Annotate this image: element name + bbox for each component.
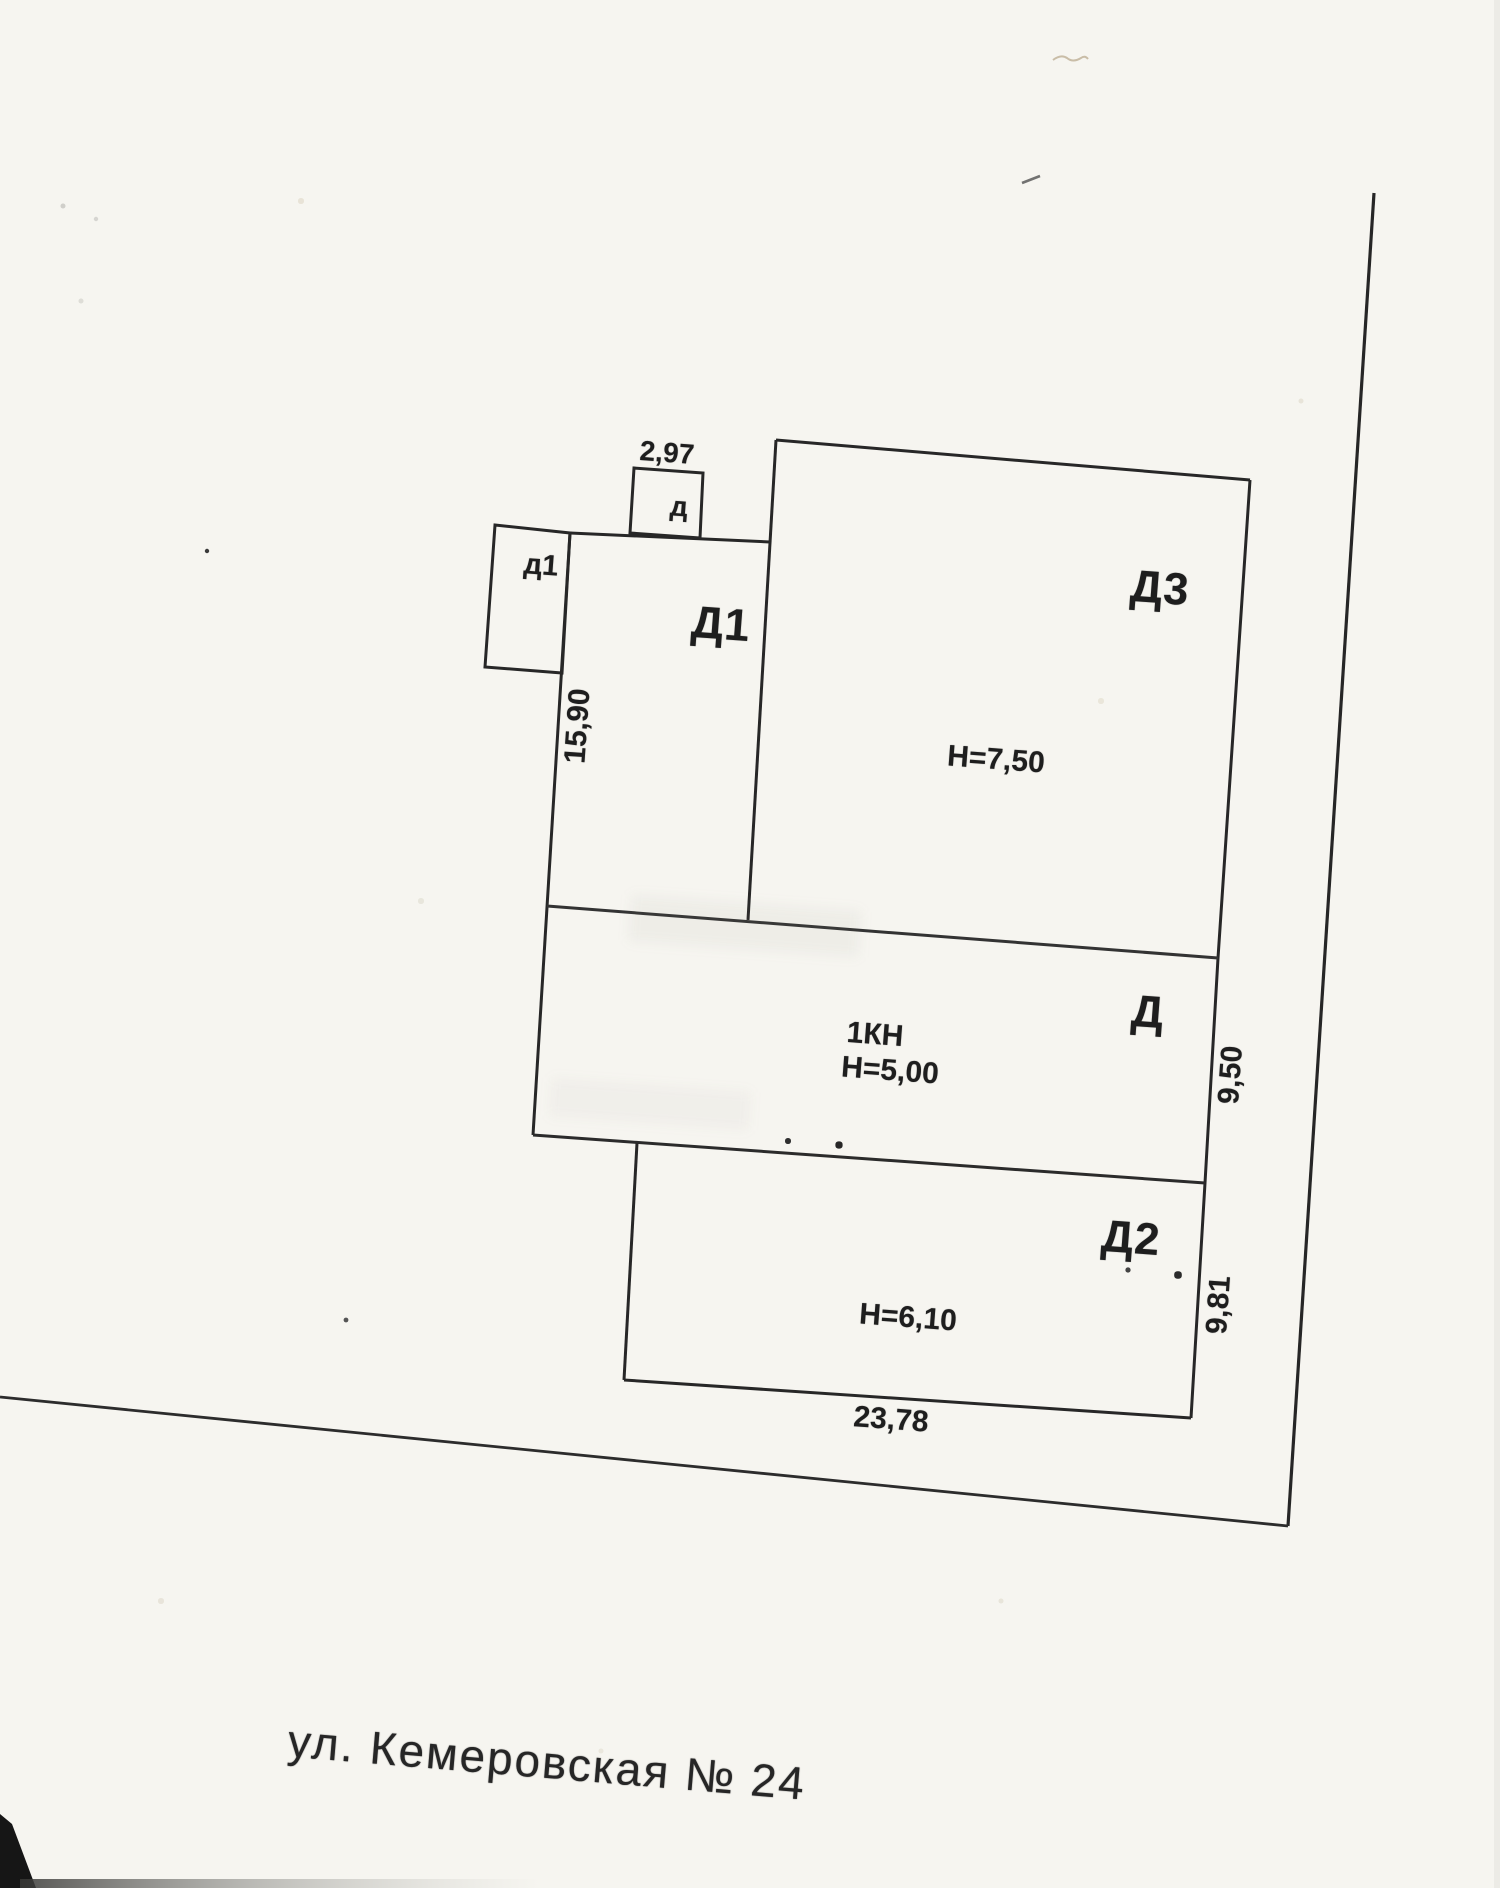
scanned-site-plan-page: 2,97 15,90 9,50 9,81 23,78 д д1 Д1 Д3 H=… — [0, 0, 1500, 1888]
annex-d1-label: д1 — [523, 548, 560, 583]
dimension-top-width: 2,97 — [639, 435, 696, 471]
scan-speckles — [0, 0, 2, 2]
dimension-right-lower: 9,81 — [1200, 1275, 1238, 1336]
property-boundary-line — [1288, 193, 1374, 1526]
annex-d-label: д — [669, 490, 689, 523]
street-boundary-line — [0, 1397, 1288, 1526]
building-d-height: H=5,00 — [840, 1050, 940, 1091]
scan-tick-artifact — [1022, 176, 1040, 183]
building-d1-label: Д1 — [690, 596, 753, 652]
dimension-right-mid: 9,50 — [1212, 1045, 1250, 1106]
scan-squiggle-artifact — [1053, 56, 1088, 60]
scan-corner-shadow — [0, 1814, 36, 1888]
building-d3-top-edge — [776, 440, 1250, 480]
building-d2-height: H=6,10 — [858, 1297, 958, 1338]
dimension-bottom-width: 23,78 — [852, 1400, 929, 1440]
scan-right-edge-shade — [1494, 0, 1500, 1888]
building-d3-height: H=7,50 — [946, 739, 1046, 780]
building-d1-top-edge — [570, 533, 770, 542]
building-d2-label: Д2 — [1100, 1210, 1163, 1266]
building-d2-left-edge — [624, 1143, 637, 1380]
annex-d1-outline — [485, 525, 570, 673]
building-d-note: 1КН — [845, 1016, 904, 1054]
building-d3-label: Д3 — [1129, 560, 1192, 616]
scan-bottom-edge-shadow — [20, 1879, 540, 1888]
annex-d-outline — [630, 468, 703, 538]
dimension-left-length: 15,90 — [558, 687, 597, 764]
d1-d3-divider-line — [748, 440, 776, 920]
building-d-label: Д — [1130, 985, 1167, 1039]
